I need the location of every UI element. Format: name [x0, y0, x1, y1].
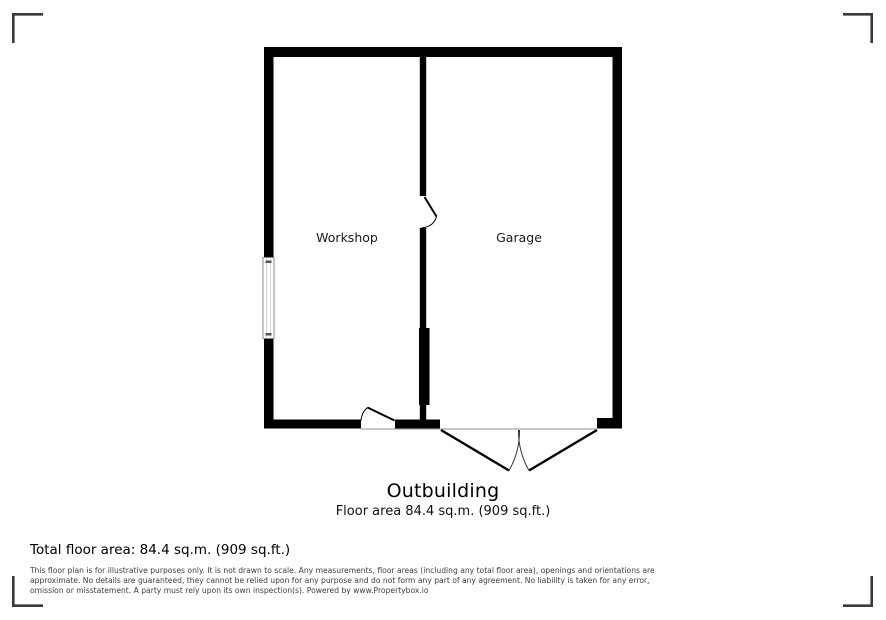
- window-tick-top: [266, 261, 272, 264]
- disclaimer-line-3: omission or misstatement. A party must r…: [30, 586, 655, 596]
- wall-top: [264, 47, 622, 57]
- plan-area-caption: Floor area 84.4 sq.m. (909 sq.ft.): [264, 504, 622, 519]
- wall-bottom-middle-segment: [395, 420, 440, 429]
- wall-internal-thick: [419, 328, 430, 405]
- wall-right: [613, 47, 623, 428]
- floorplan-page: Workshop Garage Outbuilding Floor area 8…: [0, 0, 886, 620]
- wall-bottom-left-segment: [264, 420, 361, 429]
- corner-mark-bottom-right: [843, 576, 872, 606]
- wall-internal-upper: [420, 57, 426, 196]
- room-label-garage: Garage: [496, 230, 542, 245]
- disclaimer-line-1: This floor plan is for illustrative purp…: [30, 566, 655, 576]
- garage-door-right-arc: [518, 430, 529, 471]
- wall-left-lower: [264, 338, 274, 428]
- total-floor-area: Total floor area: 84.4 sq.m. (909 sq.ft.…: [30, 542, 290, 558]
- garage-door-left-arc: [509, 430, 520, 471]
- disclaimer-line-2: approximate. No details are guaranteed, …: [30, 576, 655, 586]
- plan-title: Outbuilding: [264, 480, 622, 502]
- corner-mark-top-left: [13, 14, 43, 43]
- wall-bottom-right-segment: [597, 418, 622, 429]
- workshop-door-swing: [361, 408, 395, 421]
- wall-left-upper: [264, 47, 274, 258]
- wall-internal-lower: [420, 405, 426, 421]
- disclaimer-text: This floor plan is for illustrative purp…: [30, 566, 655, 596]
- garage-door-left-leaf: [441, 430, 509, 471]
- floor-plan-canvas: Workshop Garage: [0, 0, 886, 620]
- window-tick-bottom: [266, 333, 272, 336]
- internal-door-swing: [422, 197, 437, 228]
- corner-mark-top-right: [843, 14, 872, 43]
- wall-internal-middle: [420, 228, 426, 328]
- window: [263, 258, 274, 339]
- garage-door-right-leaf: [529, 430, 597, 471]
- garage-double-door: [441, 430, 597, 471]
- room-label-workshop: Workshop: [316, 230, 378, 245]
